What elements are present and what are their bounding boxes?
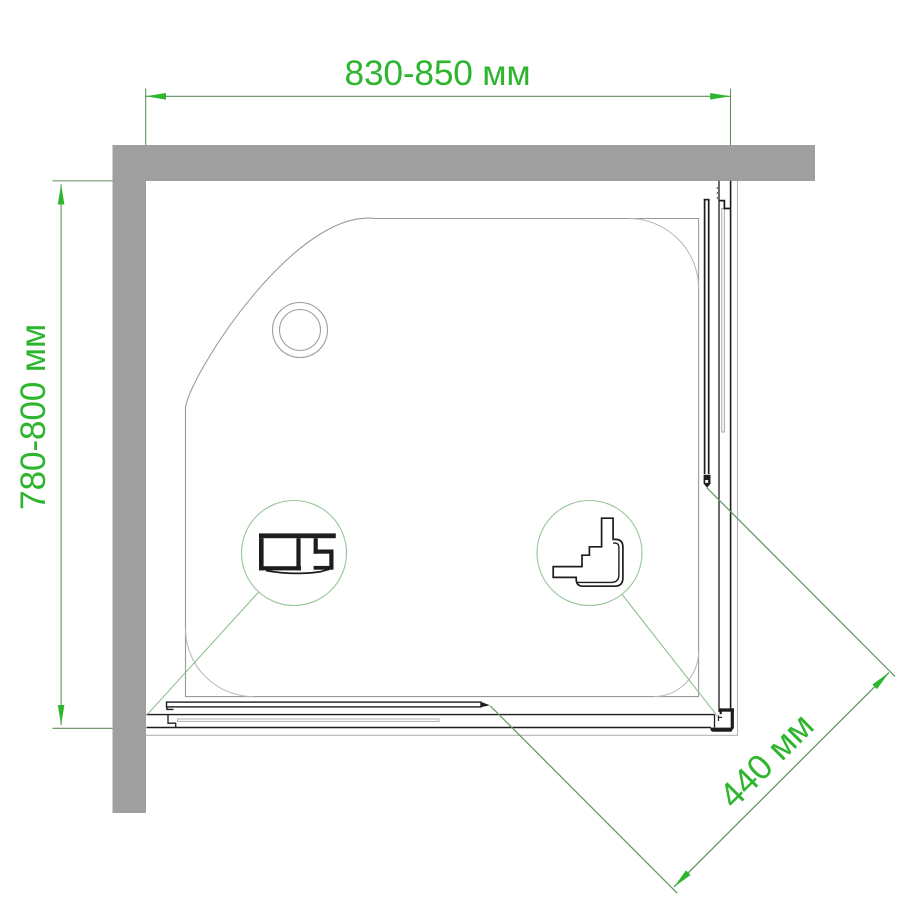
svg-text:780-800 мм: 780-800 мм [14,324,53,510]
svg-text:830-850 мм: 830-850 мм [345,54,531,93]
